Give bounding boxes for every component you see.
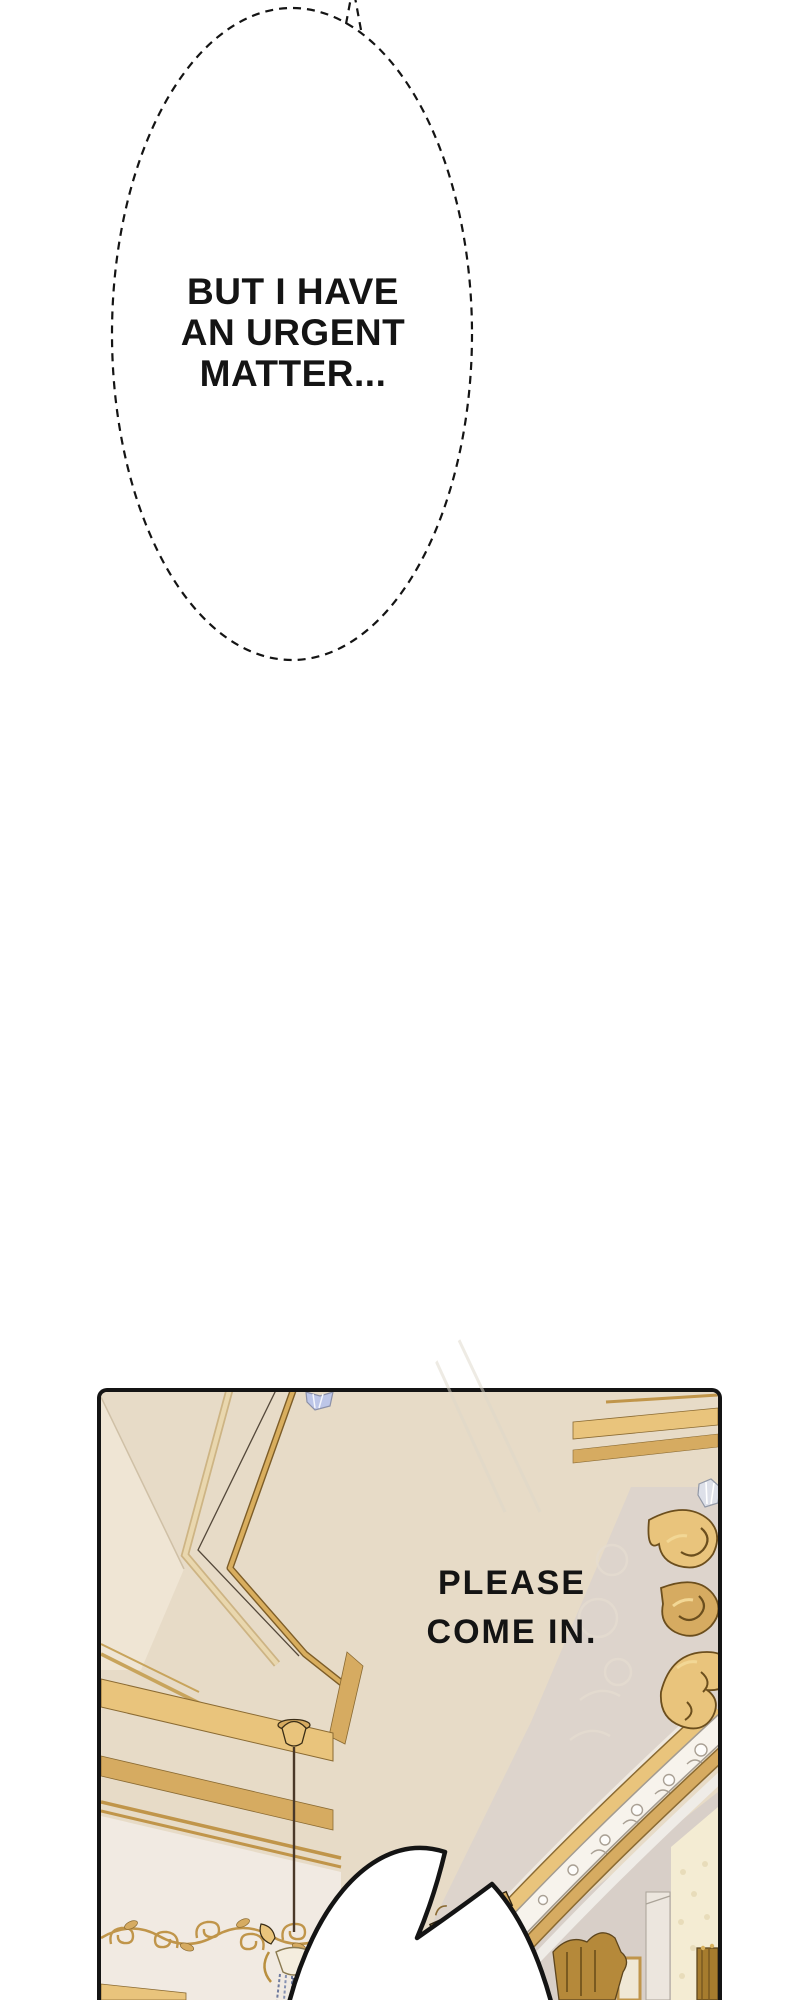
speech-bubble (273, 1338, 631, 2000)
speech-bubble-outline (273, 1848, 567, 2000)
comic-page: BUT I HAVE AN URGENT MATTER... PLEASE CO… (0, 0, 800, 2000)
speech-bubble-ghost-art (432, 1338, 631, 1740)
speech-bubble-text: PLEASE COME IN. (362, 1559, 662, 1657)
whisper-bubble-text: BUT I HAVE AN URGENT MATTER... (138, 271, 448, 394)
